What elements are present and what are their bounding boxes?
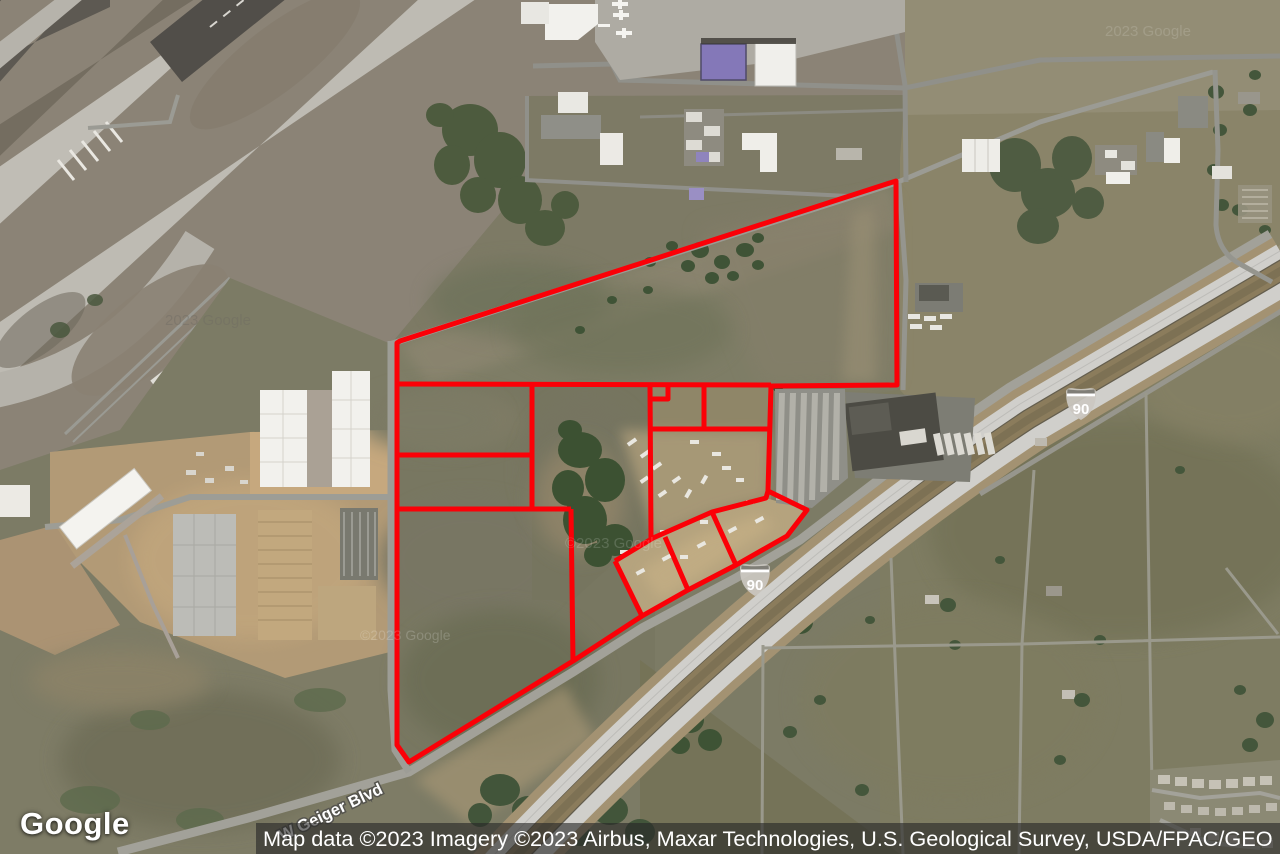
svg-text:90: 90	[1073, 401, 1090, 418]
svg-text:2023 Google: 2023 Google	[1105, 23, 1191, 40]
svg-text:2023 Google: 2023 Google	[165, 312, 251, 329]
svg-text:90: 90	[747, 577, 764, 594]
svg-text:©2023 Google: ©2023 Google	[565, 535, 662, 552]
svg-text:©2023 Google: ©2023 Google	[360, 627, 451, 643]
